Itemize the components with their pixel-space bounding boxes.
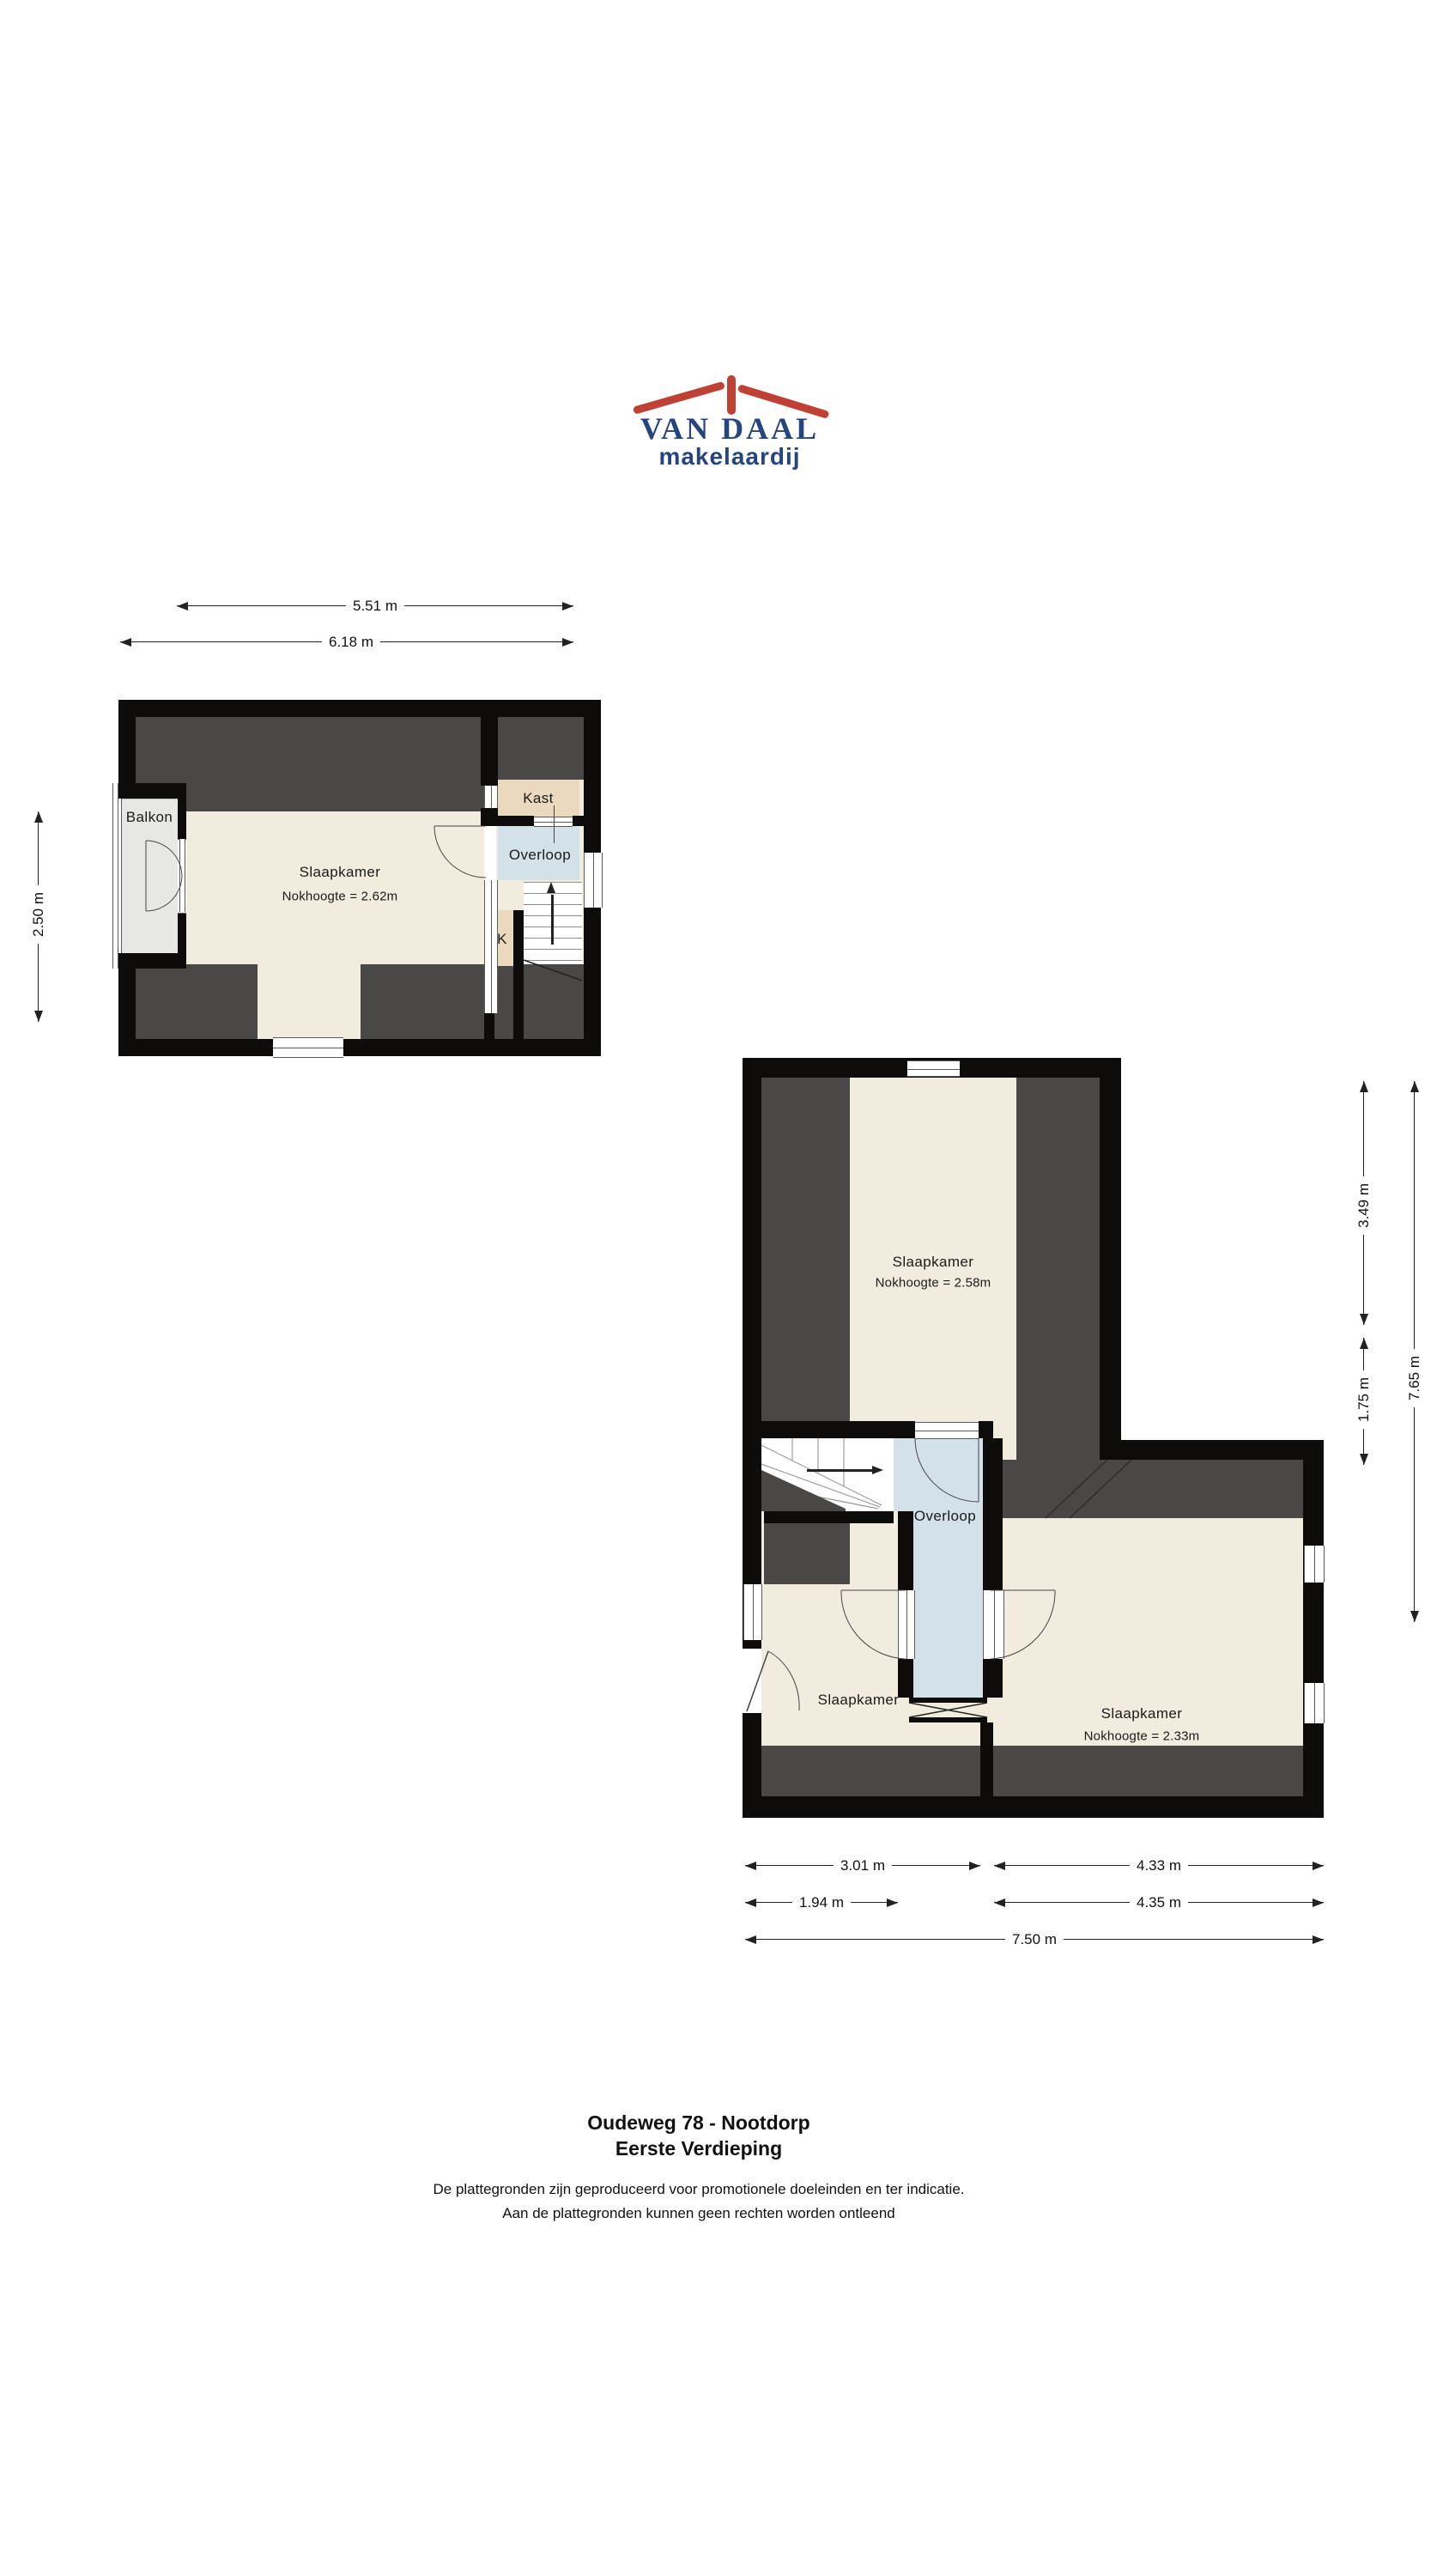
balkon-balustrade — [112, 783, 122, 969]
stairs-direction-stem — [551, 895, 554, 945]
roof-slope-above-kast — [498, 717, 584, 780]
dim-301-arrow-left-icon — [745, 1862, 756, 1870]
dim-551-label: 5.51 m — [346, 598, 404, 615]
stairs-up-arrow-icon — [547, 882, 555, 893]
dim-194-label: 1.94 m — [792, 1894, 851, 1911]
dim-250-label: 2.50 m — [30, 885, 47, 944]
wing-right-window-1 — [1304, 1546, 1325, 1583]
logo-tagline: makelaardij — [601, 443, 858, 471]
dim-750-arrow-right-icon — [1313, 1935, 1324, 1944]
overloop-label: Overloop — [509, 847, 571, 864]
kast-wall-left — [498, 816, 534, 826]
wing-roof-hip-lines — [1046, 1460, 1131, 1518]
dim-433-arrow-left-icon — [994, 1862, 1005, 1870]
dim-194-arrow-left-icon — [745, 1899, 756, 1907]
dim-618-arrow-left-icon — [120, 638, 131, 647]
left-wall-door-leaf — [743, 1647, 803, 1714]
dim-435-arrow-left-icon — [994, 1899, 1005, 1907]
balkon-door-arcs — [144, 839, 186, 913]
wing-roof-bottom — [761, 1746, 1303, 1796]
divider-thin-wall — [484, 880, 498, 1013]
bedroom-divider-wall — [980, 1722, 993, 1796]
dim-194-arrow-right-icon — [887, 1899, 898, 1907]
overloop2-label: Overloop — [914, 1508, 976, 1525]
corridor-wall-right-a — [983, 1438, 1003, 1590]
kast-door-leaf — [554, 805, 555, 843]
wing-right-window-2 — [1304, 1683, 1325, 1723]
wall-bottom — [118, 1039, 601, 1056]
divider-window — [484, 786, 498, 808]
dim-618-arrow-right-icon — [562, 638, 573, 647]
corridor-wall-left-a — [898, 1511, 913, 1590]
wall2-room-bottom-b — [979, 1421, 993, 1438]
dim-433-label: 4.33 m — [1130, 1857, 1188, 1874]
dim-765-label: 7.65 m — [1406, 1349, 1423, 1407]
dim-433-arrow-right-icon — [1313, 1862, 1324, 1870]
dim-750-label: 7.50 m — [1005, 1931, 1064, 1948]
dim-175-label: 1.75 m — [1355, 1370, 1373, 1429]
kast-wall-right — [573, 816, 584, 826]
dormer-window — [273, 1037, 343, 1058]
corridor-wall-right-b — [983, 1659, 1003, 1698]
floor-subtitle: Eerste Verdieping — [295, 2136, 1102, 2162]
dim-301-arrow-right-icon — [969, 1862, 980, 1870]
overloop-door-arc — [433, 824, 488, 879]
balkon-jamb-top — [178, 799, 186, 839]
dim-349-label: 3.49 m — [1355, 1176, 1373, 1235]
wall2-wing-top — [1100, 1440, 1324, 1460]
balkon-wall-bottom — [118, 953, 186, 969]
dim-551-arrow-left-icon — [177, 602, 188, 611]
wing-roof-top-left — [764, 1523, 850, 1584]
corridor-wall-left-b — [898, 1659, 913, 1698]
stairs2-direction-stem — [807, 1469, 874, 1472]
balkon-label: Balkon — [126, 809, 173, 826]
void-x-icon — [909, 1703, 987, 1717]
divider-wall-mid — [481, 808, 498, 826]
divider-wall-stub — [484, 1013, 494, 1039]
slaapkamer-right-note: Nokhoogte = 2.33m — [1084, 1729, 1200, 1744]
dim-175-arrow-bottom-icon — [1360, 1454, 1368, 1465]
roof-slope-top — [136, 717, 496, 811]
balkon-jamb-bottom — [178, 912, 186, 953]
overloop-window — [584, 853, 603, 908]
wall-left-lower — [118, 969, 136, 1039]
slaapkamer-top-note: Nokhoogte = 2.58m — [876, 1276, 991, 1291]
void-frame-bottom — [909, 1717, 987, 1722]
dim-551-arrow-right-icon — [562, 602, 573, 611]
wall2-wing-right — [1303, 1460, 1324, 1818]
corridor-door-arc-left — [837, 1589, 909, 1661]
k-label: K — [497, 931, 507, 948]
slaapkamer-label: Slaapkamer — [300, 864, 381, 881]
tower-top-window — [907, 1060, 960, 1077]
divider-wall-top — [481, 717, 498, 786]
dim-765-arrow-bottom-icon — [1410, 1611, 1419, 1622]
dim-250-arrow-top-icon — [34, 811, 43, 823]
wall2-room-bottom-a — [761, 1421, 915, 1438]
address-title: Oudeweg 78 - Nootdorp — [295, 2111, 1102, 2136]
logo-chimney-icon — [727, 375, 736, 415]
dim-349-arrow-bottom-icon — [1360, 1314, 1368, 1325]
roof-slope-bottom-left — [136, 964, 258, 1039]
dim-435-label: 4.35 m — [1130, 1894, 1188, 1911]
stairs-break-line — [513, 955, 584, 984]
dim-750-arrow-left-icon — [745, 1935, 756, 1944]
wall-left-upper — [118, 717, 136, 783]
disclaimer-line-2: Aan de plattegronden kunnen geen rechten… — [295, 2202, 1102, 2226]
dim-349-arrow-top-icon — [1360, 1081, 1368, 1092]
slaapkamer-top-label: Slaapkamer — [893, 1254, 974, 1271]
disclaimer-line-1: De plattegronden zijn geproduceerd voor … — [295, 2178, 1102, 2202]
wall2-bottom — [743, 1796, 1324, 1818]
floorplan-sheet: VAN DAAL makelaardij 5.51 m 6.18 m 2.50 … — [0, 0, 1449, 2576]
overloop2-corridor — [913, 1511, 983, 1698]
slaapkamer-left-label: Slaapkamer — [818, 1692, 900, 1709]
tower-roof-left — [761, 1078, 850, 1421]
dim-301-label: 3.01 m — [834, 1857, 892, 1874]
wall-top — [118, 700, 601, 717]
dim-250-arrow-bottom-icon — [34, 1011, 43, 1022]
corridor-door-arc-right — [987, 1589, 1059, 1661]
roof-slope-bottom-mid — [361, 964, 481, 1039]
logo-roof-left-icon — [633, 381, 725, 415]
slaapkamer-right-label: Slaapkamer — [1101, 1705, 1183, 1722]
dim-618-label: 6.18 m — [322, 634, 380, 651]
logo-brand-name: VAN DAAL — [601, 410, 858, 447]
dim-765-arrow-top-icon — [1410, 1081, 1419, 1092]
left-wall-window — [743, 1584, 762, 1640]
slaapkamer-note: Nokhoogte = 2.62m — [282, 890, 398, 904]
tower-room-door-arc — [913, 1437, 980, 1504]
dim-435-arrow-right-icon — [1313, 1899, 1324, 1907]
tower-roof-right — [1016, 1078, 1100, 1460]
k-stairs-wall — [513, 910, 524, 1039]
wall2-tower-right — [1100, 1058, 1121, 1460]
stairs2-arrow-icon — [872, 1466, 883, 1474]
title-block: Oudeweg 78 - Nootdorp Eerste Verdieping … — [295, 2111, 1102, 2226]
kast-label: Kast — [523, 790, 554, 807]
balkon-wall-top — [118, 783, 186, 799]
under-stairs-wall — [764, 1511, 894, 1523]
dim-175-arrow-top-icon — [1360, 1338, 1368, 1349]
